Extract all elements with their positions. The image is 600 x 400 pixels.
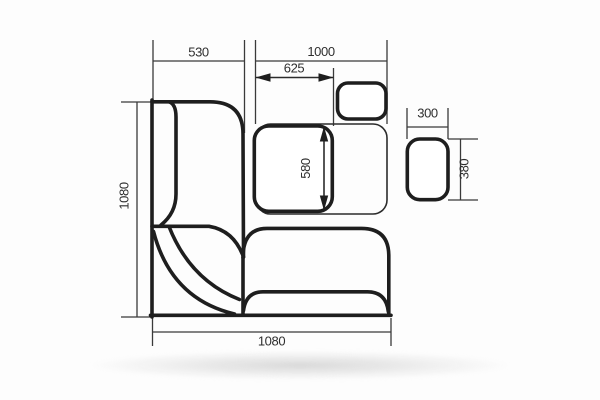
label-300: 300 xyxy=(417,106,438,121)
label-380: 380 xyxy=(457,159,472,180)
stool-top xyxy=(338,83,387,119)
label-580: 580 xyxy=(298,158,313,179)
drawing-canvas: 530 1000 625 580 1080 1080 300 380 xyxy=(0,0,600,400)
label-1000: 1000 xyxy=(307,44,334,59)
label-625: 625 xyxy=(284,61,305,76)
bottom-bench-backrest xyxy=(244,292,389,312)
label-1080-bottom: 1080 xyxy=(258,334,285,349)
label-1080-left: 1080 xyxy=(117,182,132,209)
bench-layout-diagram: 530 1000 625 580 1080 1080 300 380 xyxy=(0,0,600,400)
left-bench-seat-bottom xyxy=(152,226,244,257)
corner-backrest-inner xyxy=(169,227,240,300)
stool-right xyxy=(407,139,448,200)
arrowhead-625-right xyxy=(319,73,334,81)
arrowhead-625-left xyxy=(256,73,271,81)
corner-backrest-outer xyxy=(154,232,235,315)
label-530: 530 xyxy=(188,45,209,60)
bottom-bench-seat xyxy=(243,228,389,315)
left-bench-backrest xyxy=(161,102,176,225)
